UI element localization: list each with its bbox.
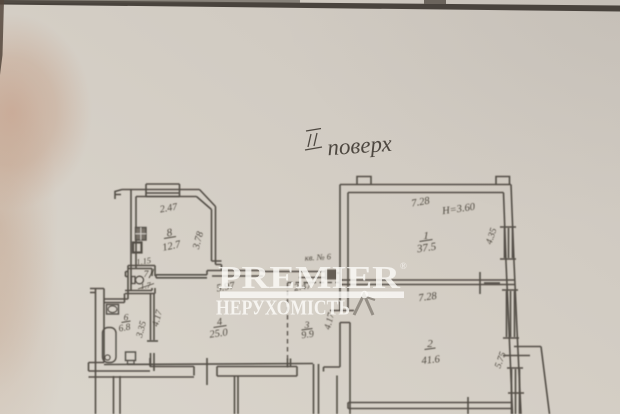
- svg-text:1.15: 1.15: [136, 255, 152, 267]
- svg-text:PREMIER: PREMIER: [218, 259, 401, 295]
- svg-text:6.8: 6.8: [118, 323, 132, 335]
- svg-text:поверх: поверх: [326, 131, 393, 160]
- svg-text:®: ®: [400, 261, 407, 271]
- svg-text:9.9: 9.9: [301, 329, 315, 342]
- svg-text:НЕРУХОМІСТЬ: НЕРУХОМІСТЬ: [216, 296, 350, 320]
- svg-text:41.6: 41.6: [421, 354, 441, 367]
